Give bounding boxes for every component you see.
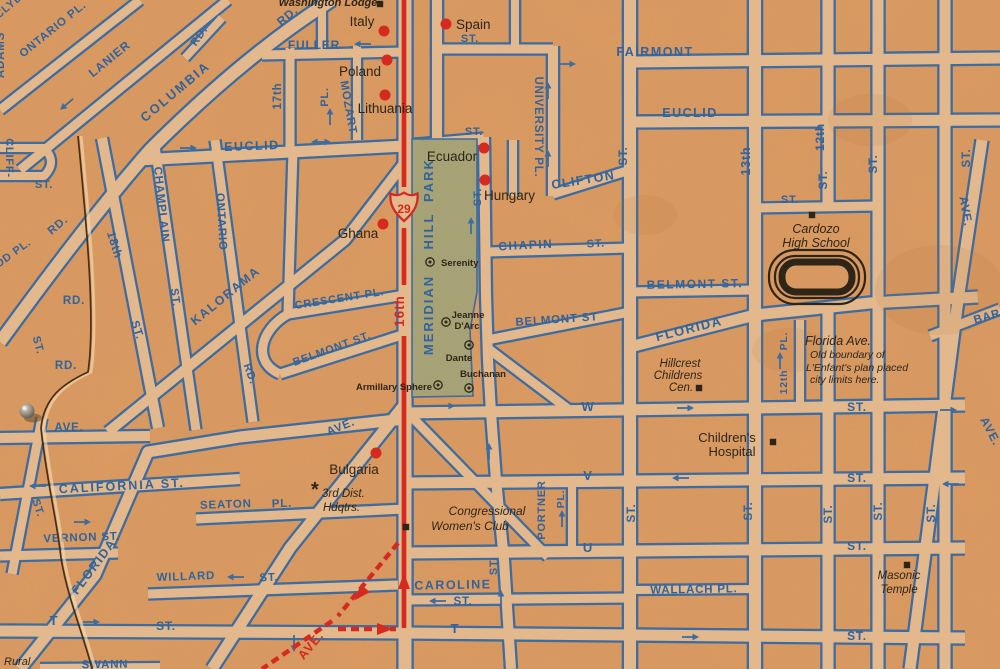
map-canvas[interactable]: ONTARIO PL.LANIERCLYDEADAMSCOLUMBIARD.RD… [0,0,1000,669]
map-viewport[interactable]: ONTARIO PL.LANIERCLYDEADAMSCOLUMBIARD.RD… [0,0,1000,669]
paper-grain [0,0,1000,669]
